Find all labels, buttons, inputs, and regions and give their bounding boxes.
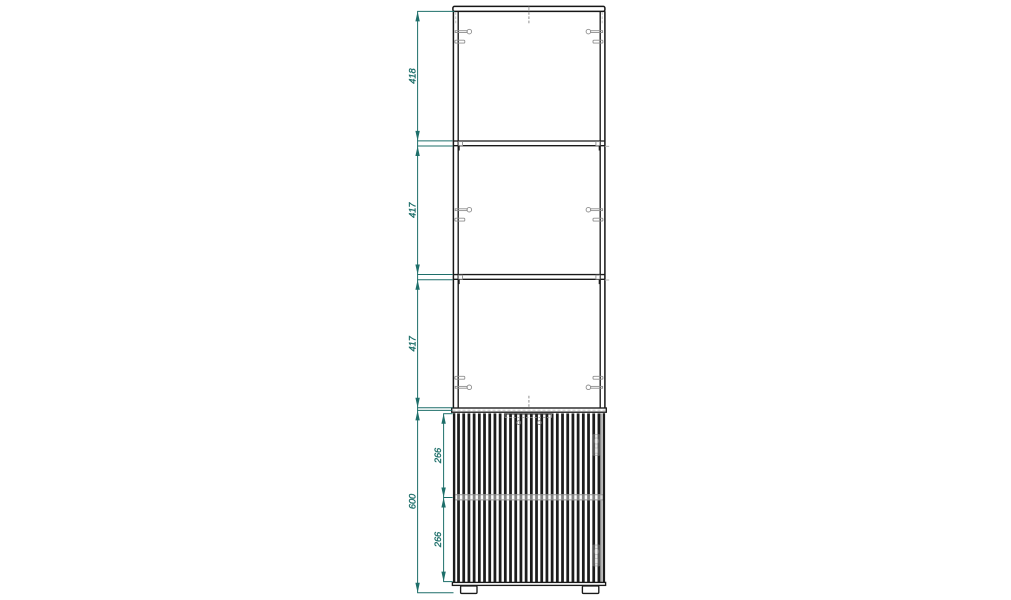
svg-text:600: 600	[408, 493, 418, 509]
svg-text:417: 417	[408, 335, 418, 351]
svg-text:266: 266	[433, 531, 443, 548]
svg-text:417: 417	[408, 202, 418, 218]
svg-text:266: 266	[433, 447, 443, 464]
svg-text:418: 418	[408, 68, 418, 84]
